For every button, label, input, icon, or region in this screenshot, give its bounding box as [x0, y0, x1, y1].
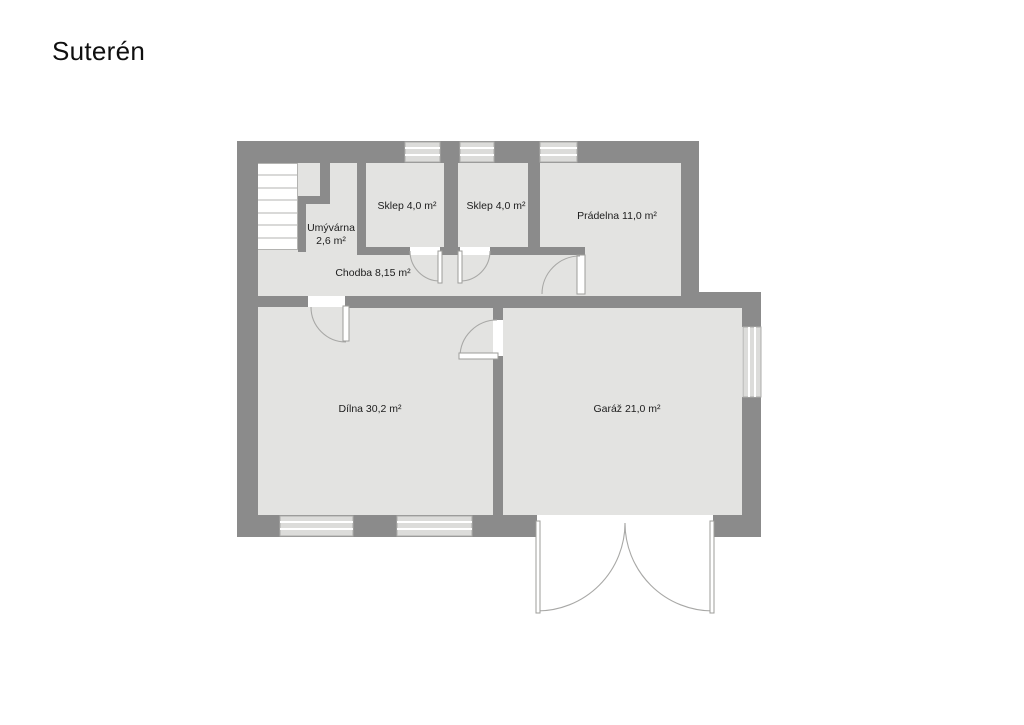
wall-step-out [681, 292, 761, 308]
room-label-dilna: Dílna 30,2 m² [338, 403, 402, 415]
staircase [258, 164, 298, 250]
stair-well [258, 164, 298, 250]
wall-stair-lower [298, 196, 306, 252]
room-label-pradelna: Prádelna 11,0 m² [577, 210, 657, 222]
wall-dilna-garaz-top [493, 308, 503, 320]
room-label-garaz: Garáž 21,0 m² [593, 403, 661, 415]
wall-chodba-dilna-right [345, 296, 681, 308]
wall-sklep-divider [444, 163, 458, 255]
wall-chodba-dilna-left [258, 296, 308, 307]
wall-under-sklep-a [357, 247, 410, 255]
room-label-umyvarna-area: 2,6 m² [316, 235, 346, 247]
wall-under-sklep-c [490, 247, 585, 255]
window-top-2 [460, 142, 494, 162]
room-label-sklep-2: Sklep 4,0 m² [467, 200, 526, 212]
window-top-1 [405, 142, 440, 162]
garage-door [536, 521, 714, 613]
wall-under-sklep-b [440, 247, 460, 255]
room-label-chodba: Chodba 8,15 m² [335, 267, 411, 279]
wall-sklep-pradelna [528, 163, 540, 255]
window-bottom-2 [397, 516, 472, 536]
wall-right-upper [681, 163, 699, 292]
wall-dilna-garaz-bottom [493, 356, 503, 515]
window-top-3 [540, 142, 577, 162]
window-bottom-1 [280, 516, 353, 536]
page: Suterén [0, 0, 1024, 725]
wall-garage-right-a [742, 308, 761, 327]
room-label-umyvarna: Umývárna [307, 222, 355, 234]
wall-bottom-right [713, 515, 761, 537]
wall-umyvarna-sklep [357, 163, 366, 255]
floor-garage-extension [681, 308, 742, 515]
wall-left [237, 141, 258, 537]
floor-plan-svg: Umývárna 2,6 m² Sklep 4,0 m² Sklep 4,0 m… [0, 0, 1024, 725]
window-right-garage [743, 327, 761, 397]
room-label-sklep-1: Sklep 4,0 m² [378, 200, 437, 212]
